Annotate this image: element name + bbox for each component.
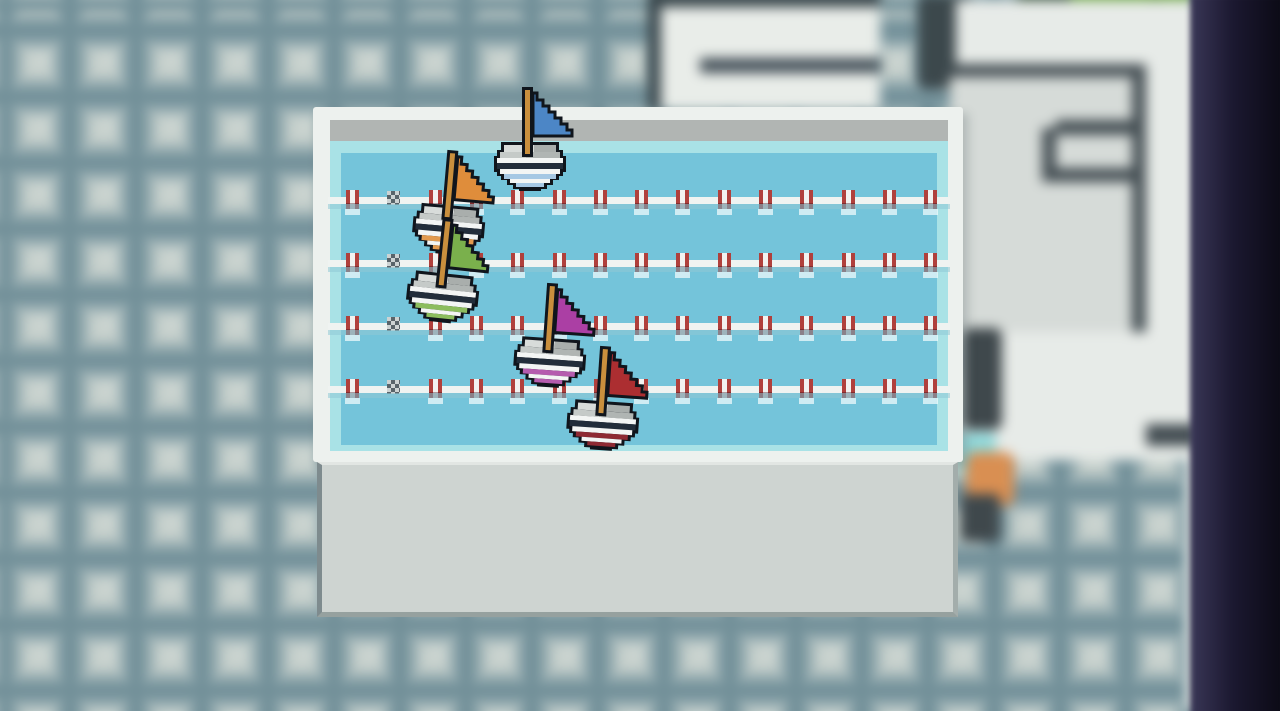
game-scene[interactable] (0, 0, 1280, 711)
counter-shelf (700, 58, 880, 73)
structure-panel (950, 64, 1146, 332)
npc-figure (960, 494, 1000, 542)
structure-detail (1056, 120, 1144, 135)
npc-figure (962, 328, 1002, 430)
pool-edge-bar (330, 120, 948, 141)
pool-water (341, 153, 937, 445)
counter-top (648, 0, 880, 110)
structure-detail (1050, 168, 1136, 182)
pool (313, 107, 963, 462)
pool-platform (317, 462, 958, 617)
dark-wall-strip (1190, 0, 1280, 711)
